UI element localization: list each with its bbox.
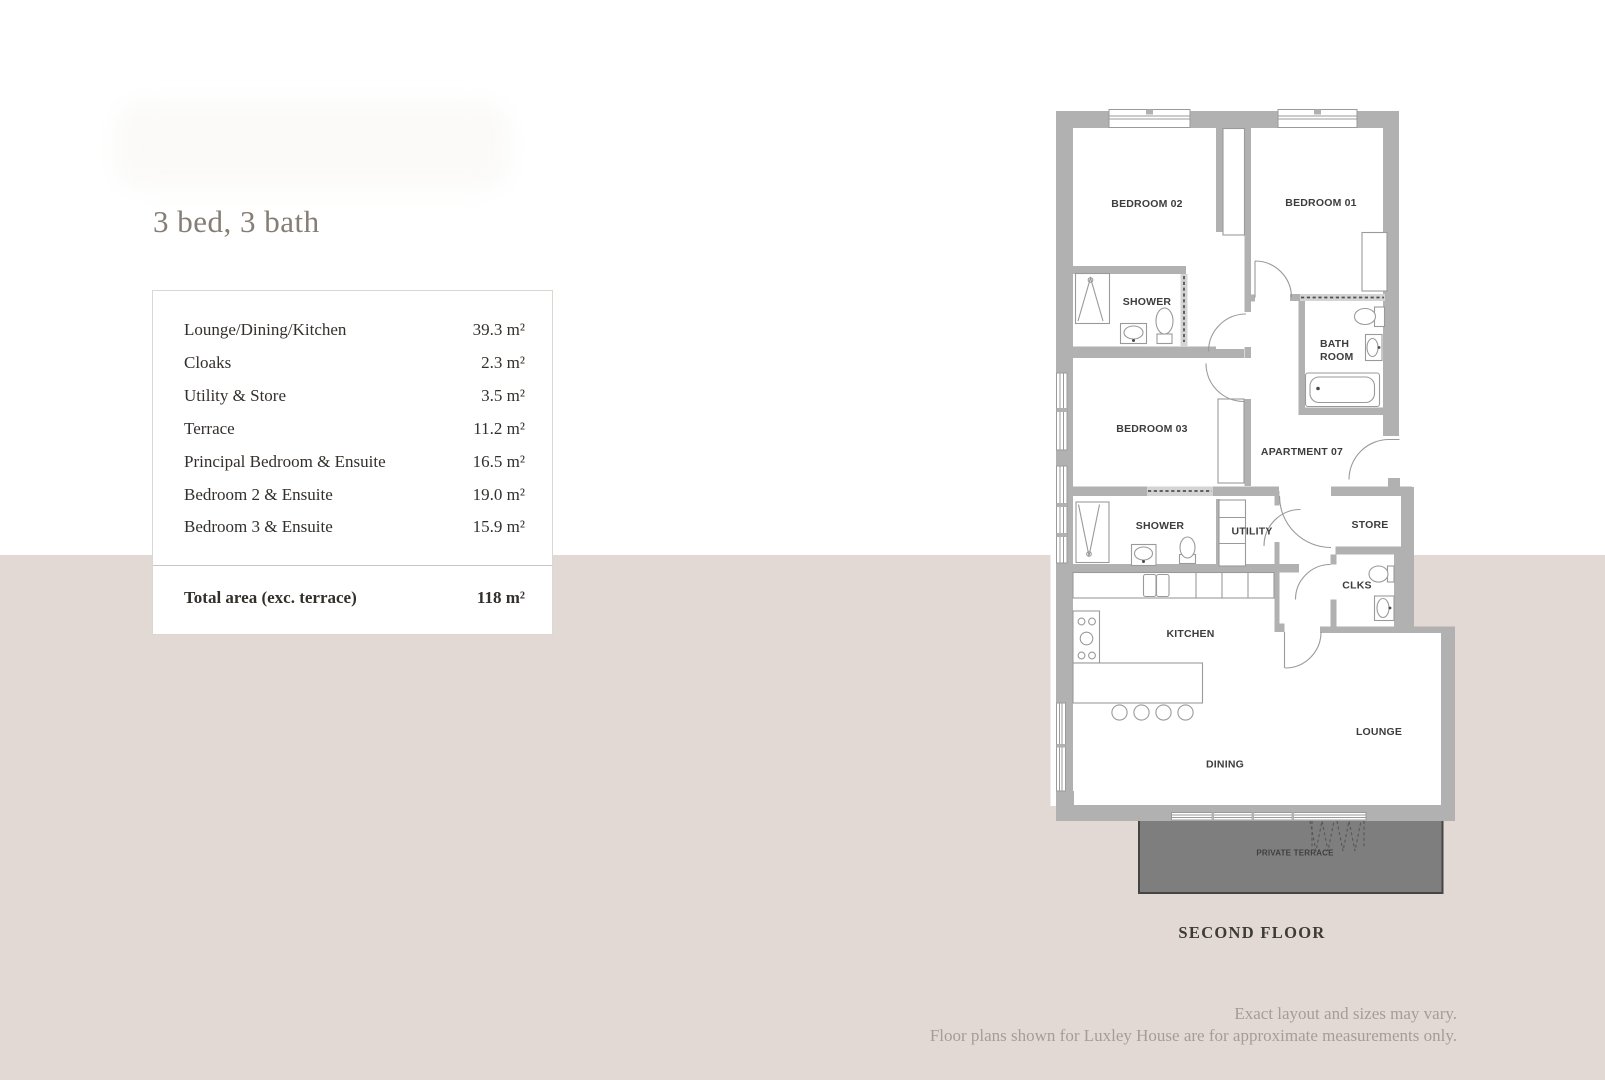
svg-text:UTILITY: UTILITY: [1231, 526, 1272, 538]
svg-text:BEDROOM 01: BEDROOM 01: [1285, 197, 1356, 209]
svg-text:STORE: STORE: [1352, 519, 1389, 531]
svg-text:KITCHEN: KITCHEN: [1166, 628, 1214, 640]
svg-text:SHOWER: SHOWER: [1123, 296, 1172, 308]
svg-text:SHOWER: SHOWER: [1136, 520, 1185, 532]
svg-text:LOUNGE: LOUNGE: [1356, 726, 1402, 738]
svg-text:APARTMENT 07: APARTMENT 07: [1261, 446, 1343, 458]
svg-text:DINING: DINING: [1206, 759, 1244, 771]
svg-text:BEDROOM 02: BEDROOM 02: [1111, 198, 1182, 210]
svg-text:PRIVATE TERRACE: PRIVATE TERRACE: [1256, 849, 1334, 858]
svg-text:CLKS: CLKS: [1342, 580, 1371, 592]
svg-text:ROOM: ROOM: [1320, 351, 1354, 363]
svg-text:BEDROOM 03: BEDROOM 03: [1116, 423, 1187, 435]
svg-text:BATH: BATH: [1320, 338, 1349, 350]
